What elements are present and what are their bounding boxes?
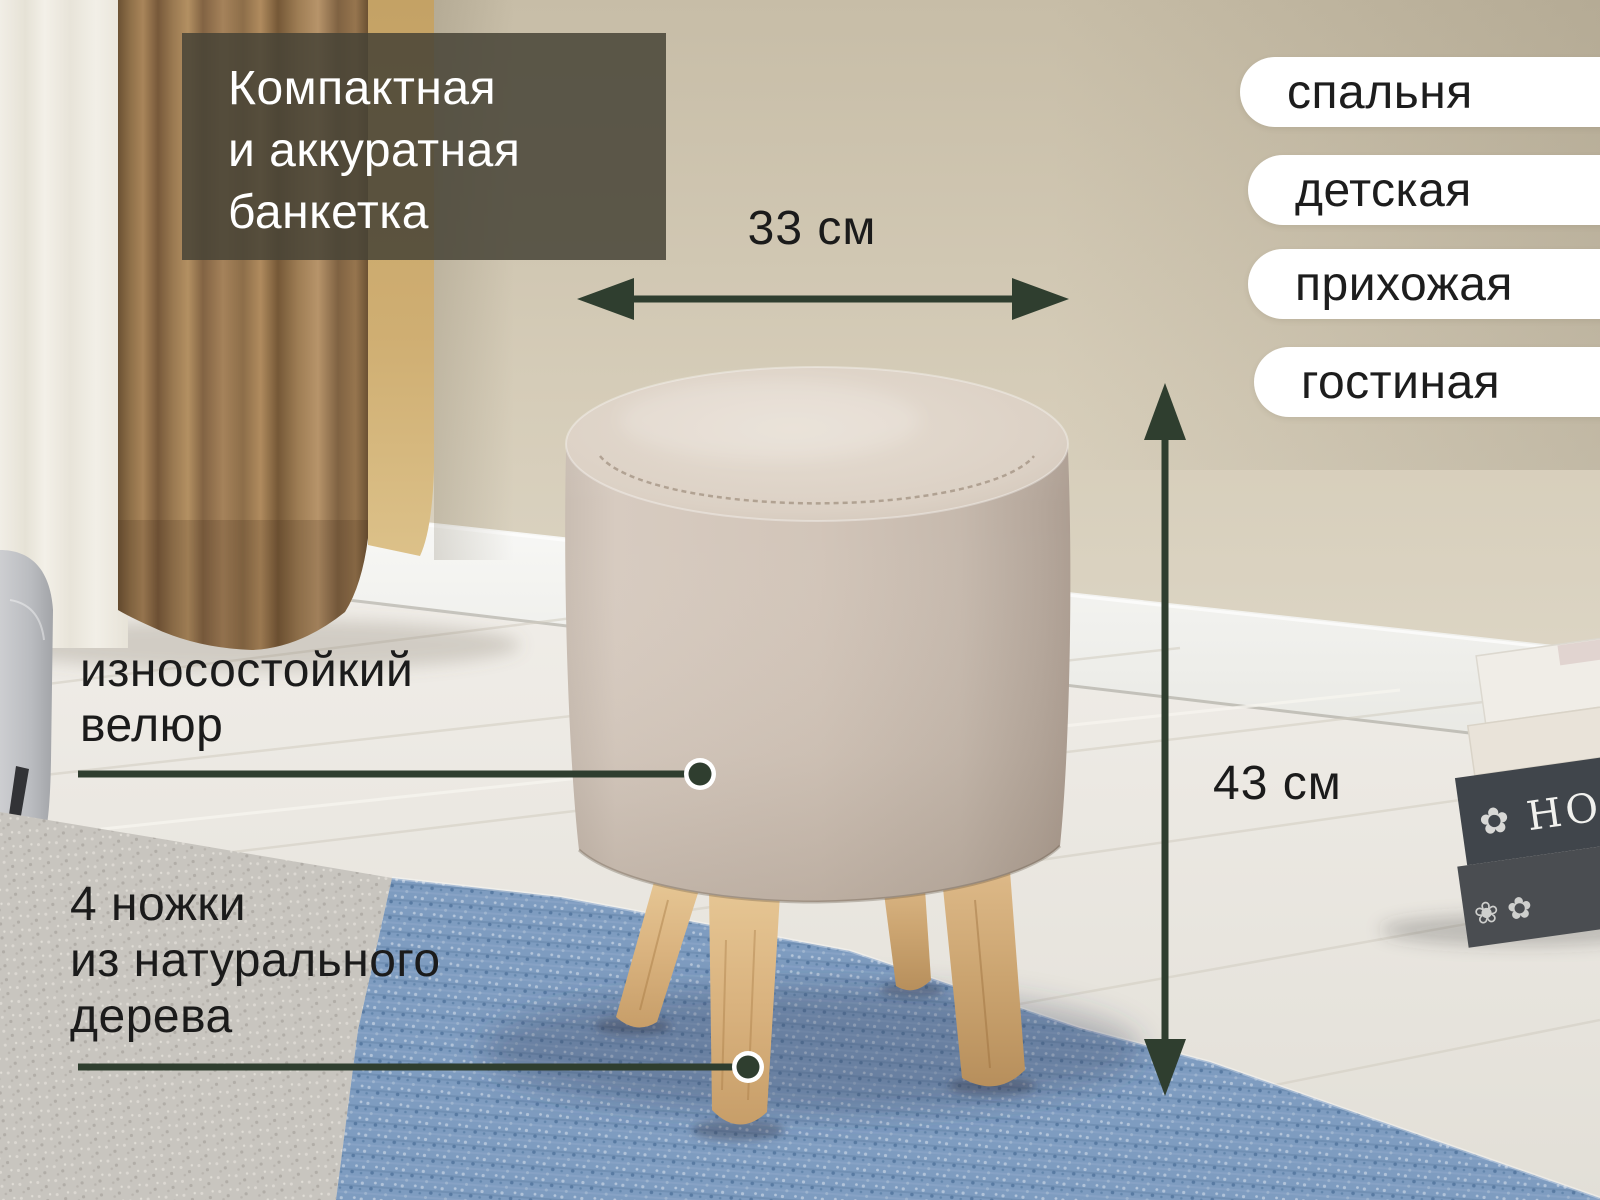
headline-box: Компактная и аккуратная банкетка bbox=[182, 33, 666, 260]
product-infographic: ✿ HOME ❀ ✿ Компактная bbox=[0, 0, 1600, 1200]
room-tag-hallway: прихожая bbox=[1248, 249, 1600, 319]
ottoman-body bbox=[565, 367, 1070, 902]
room-tag-label: спальня bbox=[1287, 65, 1473, 120]
room-tag-label: детская bbox=[1295, 163, 1472, 218]
headline-line: и аккуратная bbox=[228, 120, 666, 182]
legs-feature-label: 4 ножки из натурального дерева bbox=[70, 877, 441, 1045]
legs-feature-line: 4 ножки bbox=[70, 877, 441, 933]
velour-feature-line: износостойкий bbox=[80, 643, 413, 698]
velour-feature-line: велюр bbox=[80, 698, 413, 753]
ottoman-shadow bbox=[482, 986, 1142, 1114]
room-tag-kids: детская bbox=[1248, 155, 1600, 225]
room-tag-bedroom: спальня bbox=[1240, 57, 1600, 127]
floral-ornament-icon: ✿ bbox=[1477, 798, 1513, 843]
sheer-curtain bbox=[0, 0, 128, 648]
room-tag-livingroom: гостиная bbox=[1254, 347, 1600, 417]
room-tag-label: прихожая bbox=[1295, 257, 1513, 312]
room-tag-label: гостиная bbox=[1301, 355, 1500, 410]
legs-feature-line: из натурального bbox=[70, 933, 441, 989]
headline-line: банкетка bbox=[228, 182, 666, 244]
velour-feature-label: износостойкий велюр bbox=[80, 643, 413, 753]
headline-line: Компактная bbox=[228, 58, 666, 120]
legs-feature-line: дерева bbox=[70, 989, 441, 1045]
width-dimension-label: 33 см bbox=[712, 201, 912, 256]
height-dimension-label: 43 см bbox=[1213, 756, 1342, 811]
